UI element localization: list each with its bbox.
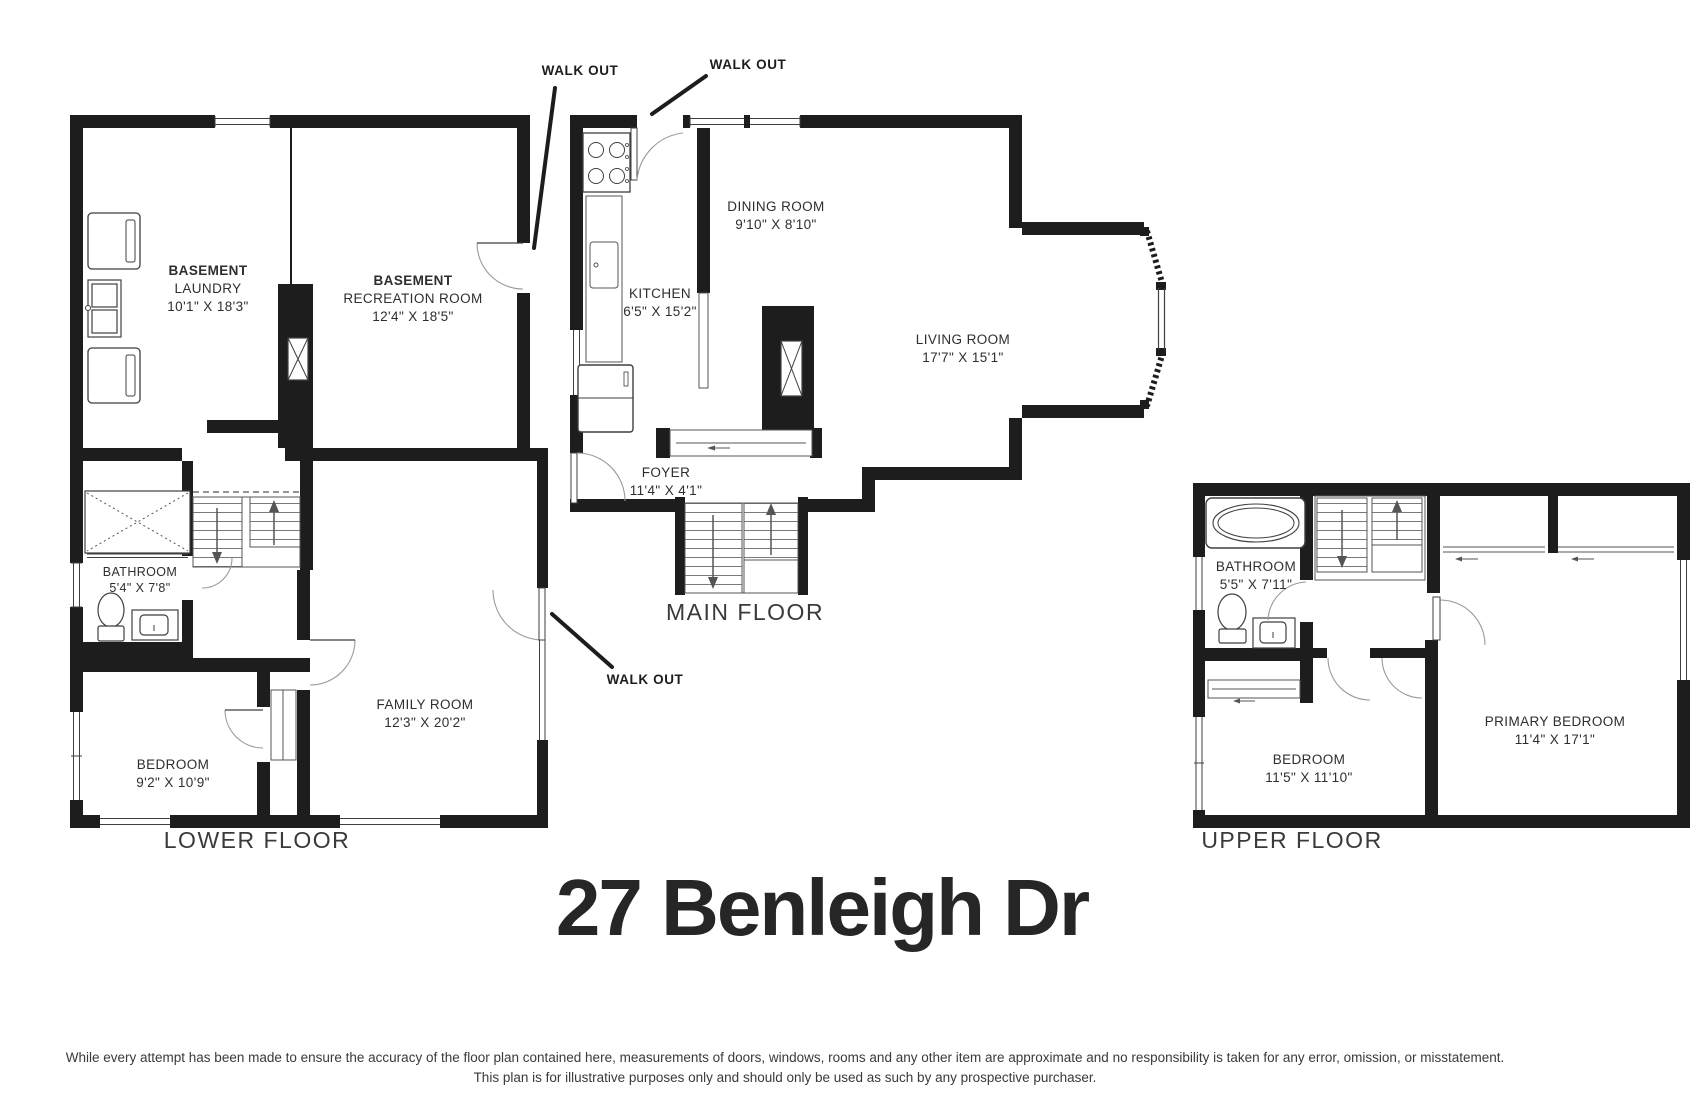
dryer-icon (88, 348, 140, 403)
lower-floor-plan (70, 115, 548, 828)
toilet-icon (98, 593, 124, 641)
pantry-counter (699, 293, 708, 388)
room-label-dining: DINING ROOM 9'10" X 8'10" (727, 198, 824, 234)
room-label-family: FAMILY ROOM 12'3" X 20'2" (377, 696, 474, 732)
floor-plan-page: WALK OUT WALK OUT WALK OUT BASEMENT LAUN… (0, 0, 1700, 1100)
room-label-rec: BASEMENT RECREATION ROOM 12'4" X 18'5" (343, 272, 482, 326)
disclaimer-line1: While every attempt has been made to ens… (0, 1048, 1570, 1068)
room-label-bedroom-lower: BEDROOM 9'2" X 10'9" (136, 756, 210, 792)
closet-lower (271, 690, 296, 760)
toilet-icon (1218, 594, 1246, 643)
disclaimer-line2: This plan is for illustrative purposes o… (0, 1068, 1570, 1088)
primary-closets (1443, 547, 1674, 562)
stove-icon (583, 133, 630, 192)
page-title: 27 Benleigh Dr (556, 862, 1088, 954)
fridge-icon (578, 365, 633, 432)
chimney-lower (288, 338, 308, 380)
room-label-foyer: FOYER 11'4" X 4'1" (630, 464, 703, 500)
stairs-upper (1315, 496, 1425, 580)
kitchen-counter (586, 196, 622, 362)
room-label-bedroom-upper: BEDROOM 11'5" X 11'10" (1265, 751, 1352, 787)
room-label-kitchen: KITCHEN 6'5" X 15'2" (623, 285, 697, 321)
laundry-tub-icon (86, 280, 122, 337)
main-walls (570, 115, 1166, 595)
room-label-bathroom-upper: BATHROOM 5'5" X 7'11" (1216, 558, 1296, 594)
lower-floor-label: LOWER FLOOR (164, 827, 350, 854)
room-label-bathroom-lower: BATHROOM 5'4" X 7'8" (103, 564, 178, 596)
disclaimer: While every attempt has been made to ens… (0, 1048, 1570, 1088)
bedroom-closet (1208, 680, 1300, 704)
upper-floor-label: UPPER FLOOR (1201, 827, 1382, 854)
foyer-closet (670, 430, 812, 456)
sink-icon (132, 610, 178, 640)
lower-walls (70, 115, 548, 828)
bathtub-icon (1206, 498, 1305, 548)
main-floor-plan (570, 115, 1166, 595)
walkout-label-family: WALK OUT (607, 672, 684, 687)
stairs-main (685, 503, 798, 593)
shower (85, 491, 190, 553)
room-label-laundry: BASEMENT LAUNDRY 10'1" X 18'3" (167, 262, 249, 316)
room-label-living: LIVING ROOM 17'7" X 15'1" (916, 331, 1010, 367)
room-label-primary: PRIMARY BEDROOM 11'4" X 17'1" (1485, 713, 1626, 749)
walkout-label-rec: WALK OUT (542, 63, 619, 78)
bay-window (1147, 231, 1165, 406)
stairs-lower (193, 492, 300, 567)
sink-icon (1253, 618, 1295, 648)
washer-icon (88, 213, 140, 269)
walkout-label-kitchen: WALK OUT (710, 57, 787, 72)
fireplace-chimney (781, 341, 802, 396)
main-floor-label: MAIN FLOOR (666, 599, 824, 626)
